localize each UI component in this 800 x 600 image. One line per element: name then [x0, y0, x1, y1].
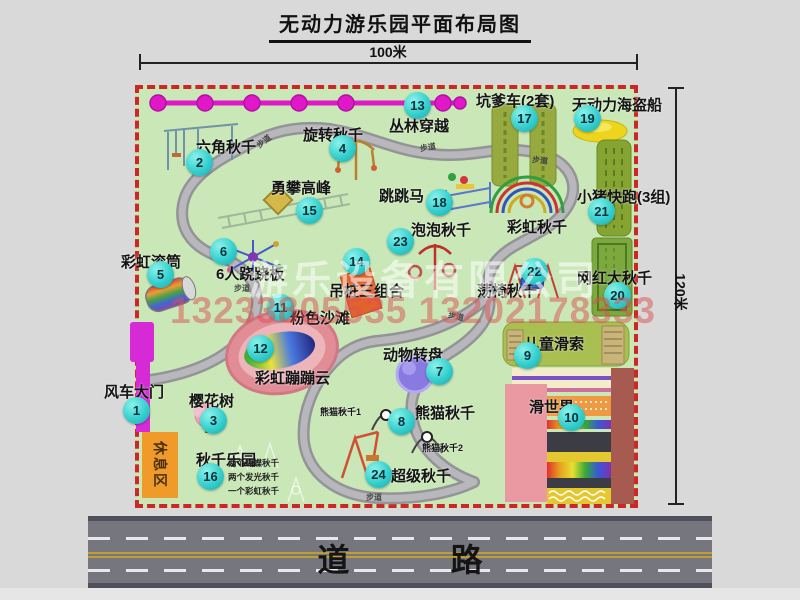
attraction-badge-8: 8: [388, 408, 415, 435]
attraction-badge-24: 24: [365, 461, 392, 488]
attraction-badge-12: 12: [247, 335, 274, 362]
dimension-right-tick-top: [668, 87, 684, 89]
dimension-top-tick-left: [139, 54, 141, 70]
attraction-badge-17: 17: [511, 105, 538, 132]
attraction-badge-16: 16: [197, 463, 224, 490]
park-plan-image: 无动力游乐园平面布局图 100米 120米: [0, 0, 800, 600]
attraction-label-18: 跳跳马: [379, 185, 424, 206]
attraction-badge-19: 19: [574, 105, 601, 132]
rainbow-swing-label: 彩虹秋千: [507, 216, 567, 237]
watermark-phone: 13233805535 13202178333: [170, 290, 656, 332]
attraction-label-23: 泡泡秋千: [411, 219, 471, 240]
attraction-label-15: 勇攀高峰: [271, 177, 331, 198]
attraction-label-12: 彩虹蹦蹦云: [255, 367, 330, 388]
attraction-badge-3: 3: [200, 407, 227, 434]
rest-area-label: 休息区: [150, 441, 170, 489]
rest-area: 休息区: [142, 432, 178, 498]
attraction-badge-15: 15: [296, 197, 323, 224]
attraction-badge-9: 9: [514, 342, 541, 369]
trail-label: 步道: [531, 154, 548, 167]
attraction-badge-1: 1: [123, 397, 150, 424]
dimension-right-label: 120米: [671, 273, 691, 310]
attraction-badge-2: 2: [186, 149, 213, 176]
swing-park-note-2: 两个发光秋千: [228, 471, 279, 483]
attraction-badge-7: 7: [426, 358, 453, 385]
road-label: 道 路: [88, 535, 712, 581]
road: 道 路: [88, 516, 712, 588]
attraction-badge-4: 4: [329, 135, 356, 162]
attraction-badge-21: 21: [588, 198, 615, 225]
trail-label: 步道: [366, 492, 382, 503]
attraction-badge-6: 6: [210, 238, 237, 265]
page-title: 无动力游乐园平面布局图: [269, 8, 531, 43]
attraction-badge-5: 5: [147, 261, 174, 288]
dimension-top-label: 100米: [338, 42, 438, 62]
swing-park-note-1: 两个蝴蝶秋千: [228, 457, 279, 469]
dimension-right-tick-bottom: [668, 503, 684, 505]
attraction-badge-18: 18: [426, 189, 453, 216]
attraction-badge-13: 13: [404, 92, 431, 119]
swing-park-note-3: 一个彩虹秋千: [228, 485, 279, 497]
below-road-strip: [0, 588, 800, 600]
panda-swing-2-label: 熊猫秋千2: [422, 441, 463, 454]
dimension-top-tick-right: [636, 54, 638, 70]
panda-swing-1-label: 熊猫秋千1: [320, 405, 361, 418]
attraction-badge-10: 10: [558, 404, 585, 431]
attraction-label-24: 超级秋千: [391, 465, 451, 486]
dimension-top-line: [140, 62, 637, 64]
attraction-label-8: 熊猫秋千: [415, 402, 475, 423]
